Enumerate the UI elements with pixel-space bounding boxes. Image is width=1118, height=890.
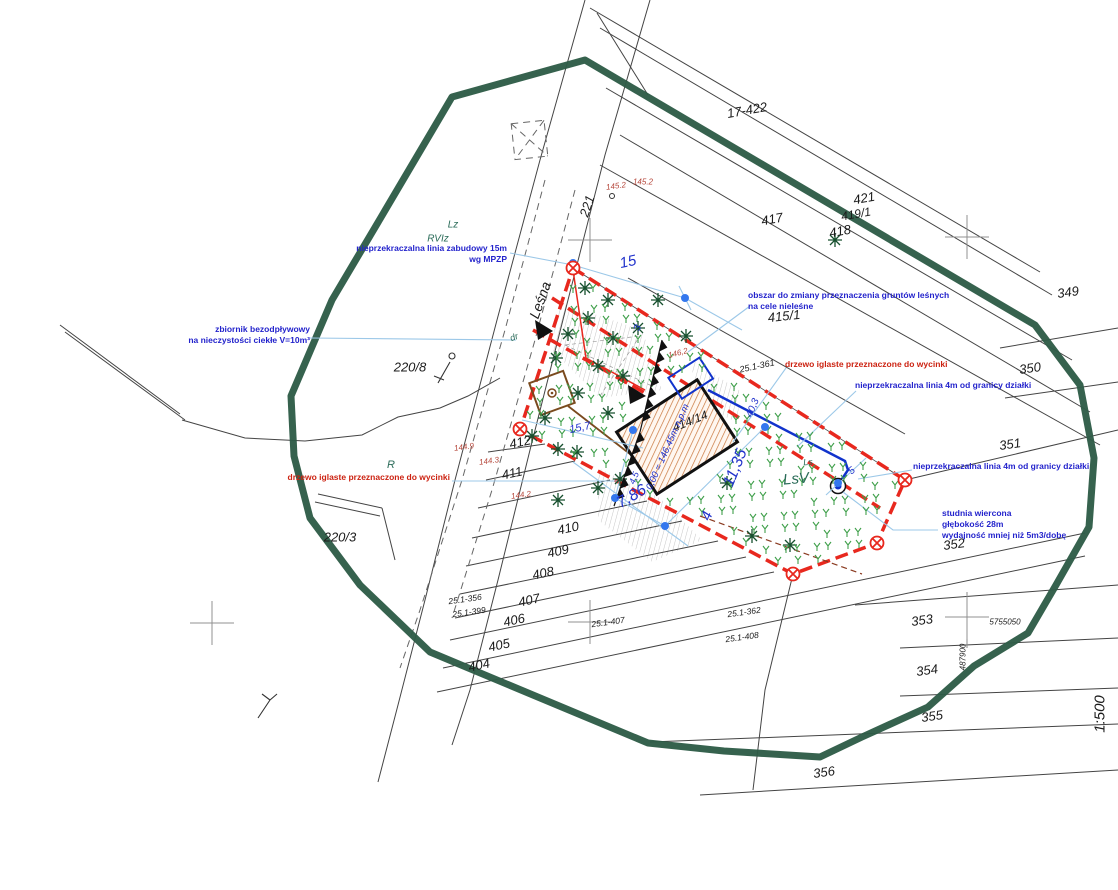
dimension-node-dot [629,426,637,434]
grass-icon [620,414,626,422]
survey-cross-icon [190,601,234,645]
benchmark-point [610,194,615,199]
annotation-tree-removal-right: drzewo iglaste przeznaczone do wycinki [785,359,947,370]
dimension-label: 15 [618,252,638,272]
parcel-label: 353 [910,611,934,629]
annotation-4m-line-lower: nieprzekraczalna linia 4m od granicy dzi… [913,461,1089,472]
site-plan-map: 17-422421419/141741834935035135235335435… [0,0,1118,890]
grass-icon [634,314,640,322]
grass-icon [873,494,879,502]
grass-icon [759,480,765,488]
parcel-label: 5755050 [989,618,1020,627]
annotation-tree-removal-left: drzewo iglaste przeznaczone do wycinki [240,472,450,483]
grass-icon [750,514,756,522]
grass-icon [602,448,608,456]
conifer-tree-icon [549,351,563,365]
grass-icon [823,509,829,517]
grass-icon [745,427,751,435]
grass-icon [778,458,784,466]
grass-icon [527,411,533,419]
grass-icon [814,543,820,551]
grass-icon [666,333,672,341]
grass-icon [718,495,724,503]
annotation-septic-tank: zbiornik bezodpływowy na nieczystości ci… [150,324,310,346]
grass-icon [731,527,737,535]
grass-icon [588,395,594,403]
grass-icon [557,397,563,405]
grass-icon [828,443,834,451]
pole-icon [258,694,277,718]
grass-icon [829,464,835,472]
grass-icon [762,525,768,533]
grass-icon [815,555,821,563]
grass-icon [839,442,845,450]
dimension-node-dot [661,522,669,530]
spot-height-label: 145.2 [633,178,653,187]
grass-icon [600,415,606,423]
grass-icon [761,513,767,521]
grass-icon [591,449,597,457]
parcel-label: 1:500 [1092,695,1109,733]
parcel-label: 351 [998,435,1022,453]
grass-icon [795,556,801,564]
grass-icon [591,305,597,313]
conifer-tree-icon [561,327,575,341]
conifer-tree-icon [601,406,615,420]
grass-icon [619,402,625,410]
parcel-label: 349 [1056,283,1080,301]
grass-icon [791,490,797,498]
grass-icon [622,303,628,311]
grass-icon [763,546,769,554]
grass-icon [734,428,740,436]
grass-icon [810,477,816,485]
grass-icon [831,497,837,505]
grass-icon [556,385,562,393]
conifer-tree-icon [591,481,605,495]
grass-icon [855,528,861,536]
grass-icon [845,541,851,549]
grass-icon [559,430,565,438]
grass-icon [748,481,754,489]
grass-icon [860,462,866,470]
grass-icon [679,365,685,373]
parcel-label: 350 [1018,359,1042,377]
grass-icon [602,304,608,312]
parcel-label: 356 [812,763,836,781]
grass-icon [843,508,849,516]
annotation-forest-conversion: obszar do zmiany przeznaczenia gruntów l… [748,290,949,312]
map-canvas [0,0,1118,890]
dimension-node-dot [681,294,689,302]
landuse-label: LsV [782,469,809,488]
grass-icon [813,522,819,530]
grass-icon [539,431,545,439]
grass-icon [558,418,564,426]
grass-icon [825,542,831,550]
landuse-label: Ls [803,457,813,468]
survey-cross-icon [945,215,989,259]
conifer-tree-icon [551,442,565,456]
grass-icon [655,334,661,342]
annotation-building-line: nieprzekraczalna linia zabudowy 15m wg M… [317,243,507,265]
parcel-label: 220/3 [324,530,357,545]
grass-icon [780,491,786,499]
parcel-label: 487900 [959,644,968,671]
grass-icon [872,482,878,490]
road-sign-icon [434,353,455,383]
conifer-tree-icon [651,293,665,307]
grass-icon [792,511,798,519]
grass-icon [749,493,755,501]
grass-icon [782,524,788,532]
grass-icon [603,460,609,468]
parcel-label: 220/8 [394,360,427,375]
conifer-tree-icon [591,359,605,373]
annotation-4m-line-upper: nieprzekraczalna linia 4m od granicy dzi… [855,380,1031,391]
survey-cross-icon [945,595,989,639]
grass-icon [842,496,848,504]
conifer-tree-icon [551,493,565,507]
grass-icon [797,445,803,453]
grass-icon [743,394,749,402]
annotation-well: studnia wiercona głębokość 28m wydajność… [942,508,1066,541]
grass-icon [601,427,607,435]
conifer-tree-icon [679,329,693,343]
dimension-node-dot [834,479,842,487]
dimension-node-dot [761,423,769,431]
grass-icon [777,446,783,454]
grass-icon [667,498,673,506]
landuse-label: R [387,459,395,471]
grass-icon [808,444,814,452]
conifer-tree-icon [578,281,592,295]
grass-icon [763,402,769,410]
grass-icon [840,463,846,471]
survey-cross-icon [568,218,612,262]
grass-icon [623,315,629,323]
grass-icon [844,529,850,537]
grass-icon [760,492,766,500]
grass-icon [730,506,736,514]
grass-icon [793,523,799,531]
grass-icon [856,540,862,548]
grass-icon [766,447,772,455]
grass-icon [555,364,561,372]
grass-icon [824,530,830,538]
grass-icon [767,459,773,467]
grass-icon [743,538,749,546]
grass-icon [812,510,818,518]
landuse-label: Lz [448,220,459,231]
grass-icon [536,386,542,394]
grass-icon [729,494,735,502]
grass-icon [811,498,817,506]
grass-icon [567,384,573,392]
grass-icon [892,481,898,489]
grass-icon [719,507,725,515]
grass-icon [698,496,704,504]
grass-icon [781,512,787,520]
dashed-building-symbol [511,120,548,159]
parcel-label: 355 [920,707,944,725]
grass-icon [775,413,781,421]
parcel-label: 354 [915,661,939,679]
